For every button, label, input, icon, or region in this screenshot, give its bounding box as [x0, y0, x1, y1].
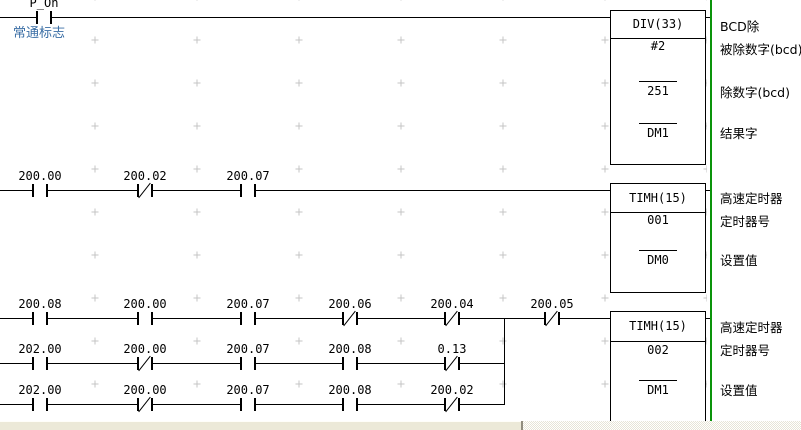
side-label: BCD除: [720, 16, 759, 35]
operand-value: DM1: [639, 123, 677, 140]
instruction-mnemonic: DIV(33): [611, 11, 705, 39]
right-bus-bar: [710, 0, 712, 421]
instruction-block-timh1[interactable]: TIMH(15) 001 DM0: [610, 183, 706, 293]
operand-value: DM0: [639, 250, 677, 267]
contact-address: 200.02: [105, 169, 185, 184]
no-contact-symbol: [240, 398, 256, 411]
contact-address: 200.00: [0, 169, 80, 184]
contact[interactable]: 200.04: [412, 297, 492, 327]
side-label: 除数字(bcd): [720, 82, 790, 101]
contact[interactable]: 200.08: [310, 342, 390, 372]
contact[interactable]: 202.00: [0, 383, 80, 413]
contact[interactable]: 0.13: [412, 342, 492, 372]
instruction-block-div[interactable]: DIV(33) #2 251 DM1: [610, 10, 706, 165]
side-label: 定时器号: [720, 211, 770, 230]
contact[interactable]: 202.00: [0, 342, 80, 372]
contact[interactable]: 200.08: [310, 383, 390, 413]
contact-address: 200.07: [208, 297, 288, 312]
side-label: 设置值: [720, 250, 758, 269]
contact[interactable]: 200.00: [105, 297, 185, 327]
contact[interactable]: 200.07: [208, 342, 288, 372]
contact-address: 200.08: [310, 342, 390, 357]
operand-value: 251: [639, 81, 677, 98]
no-contact-symbol: [342, 357, 358, 370]
operand-result[interactable]: DM1: [611, 123, 705, 140]
contact[interactable]: 200.07: [208, 383, 288, 413]
operand-set-value[interactable]: DM0: [611, 250, 705, 267]
contact-address: 200.08: [310, 383, 390, 398]
no-contact-symbol: [342, 398, 358, 411]
side-label: 设置值: [720, 380, 758, 399]
contact[interactable]: 200.08: [0, 297, 80, 327]
operand-value: DM1: [639, 380, 677, 397]
contact[interactable]: 200.00: [105, 342, 185, 372]
contact-address: 200.08: [0, 297, 80, 312]
operand-timer-number[interactable]: 002: [611, 343, 705, 357]
contact-address: P_On: [4, 0, 84, 11]
wire-rung2: [0, 190, 611, 191]
side-label: 高速定时器: [720, 188, 783, 207]
nc-contact-symbol: [444, 398, 460, 411]
contact-address: 200.06: [310, 297, 390, 312]
side-label: 定时器号: [720, 340, 770, 359]
side-label: 结果字: [720, 123, 758, 142]
contact-address: 202.00: [0, 342, 80, 357]
instruction-mnemonic: TIMH(15): [611, 312, 705, 342]
operand-set-value[interactable]: DM1: [611, 380, 705, 397]
contact-address: 200.07: [208, 383, 288, 398]
contact[interactable]: 200.00: [105, 383, 185, 413]
nc-contact-symbol: [444, 312, 460, 325]
contact-address: 200.07: [208, 169, 288, 184]
ladder-editor-canvas: P_On 常通标志 200.00 200.02 200.07 200.08 20…: [0, 0, 801, 430]
contact-address: 200.04: [412, 297, 492, 312]
no-contact-symbol: [32, 312, 48, 325]
instruction-mnemonic: TIMH(15): [611, 184, 705, 213]
nc-contact-symbol: [137, 398, 153, 411]
operand-timer-number[interactable]: 001: [611, 213, 705, 227]
operand-dividend[interactable]: #2: [611, 39, 705, 53]
contact-address: 200.00: [105, 383, 185, 398]
nc-contact-symbol: [137, 357, 153, 370]
contact[interactable]: 200.07: [208, 297, 288, 327]
scrollbar-thumb[interactable]: [0, 421, 521, 430]
contact[interactable]: 200.02: [412, 383, 492, 413]
scrollbar-track[interactable]: [523, 421, 801, 430]
contact-address: 200.05: [512, 297, 592, 312]
horizontal-scrollbar[interactable]: [0, 421, 801, 430]
no-contact-symbol: [32, 398, 48, 411]
contact-comment: 常通标志: [13, 22, 65, 41]
no-contact-symbol: [32, 357, 48, 370]
no-contact-symbol: [137, 312, 153, 325]
side-label: 被除数字(bcd): [720, 39, 801, 58]
contact-address: 0.13: [412, 342, 492, 357]
operand-divisor[interactable]: 251: [611, 81, 705, 98]
contact-address: 200.02: [412, 383, 492, 398]
no-contact-symbol: [32, 184, 48, 197]
contact[interactable]: 200.06: [310, 297, 390, 327]
nc-contact-symbol: [137, 184, 153, 197]
no-contact-symbol: [240, 184, 256, 197]
wire-rung1: [0, 17, 610, 18]
contact-address: 200.00: [105, 342, 185, 357]
contact[interactable]: 200.02: [105, 169, 185, 199]
contact-address: 200.07: [208, 342, 288, 357]
contact[interactable]: 200.07: [208, 169, 288, 199]
nc-contact-symbol: [444, 357, 460, 370]
instruction-block-timh2[interactable]: TIMH(15) 002 DM1: [610, 311, 706, 423]
nc-contact-symbol: [342, 312, 358, 325]
side-label: 高速定时器: [720, 317, 783, 336]
contact[interactable]: 200.05: [512, 297, 592, 327]
wire-junction: [504, 318, 505, 405]
nc-contact-symbol: [544, 312, 560, 325]
no-contact-symbol: [240, 312, 256, 325]
contact-address: 202.00: [0, 383, 80, 398]
contact[interactable]: 200.00: [0, 169, 80, 199]
contact-address: 200.00: [105, 297, 185, 312]
no-contact-symbol: [240, 357, 256, 370]
